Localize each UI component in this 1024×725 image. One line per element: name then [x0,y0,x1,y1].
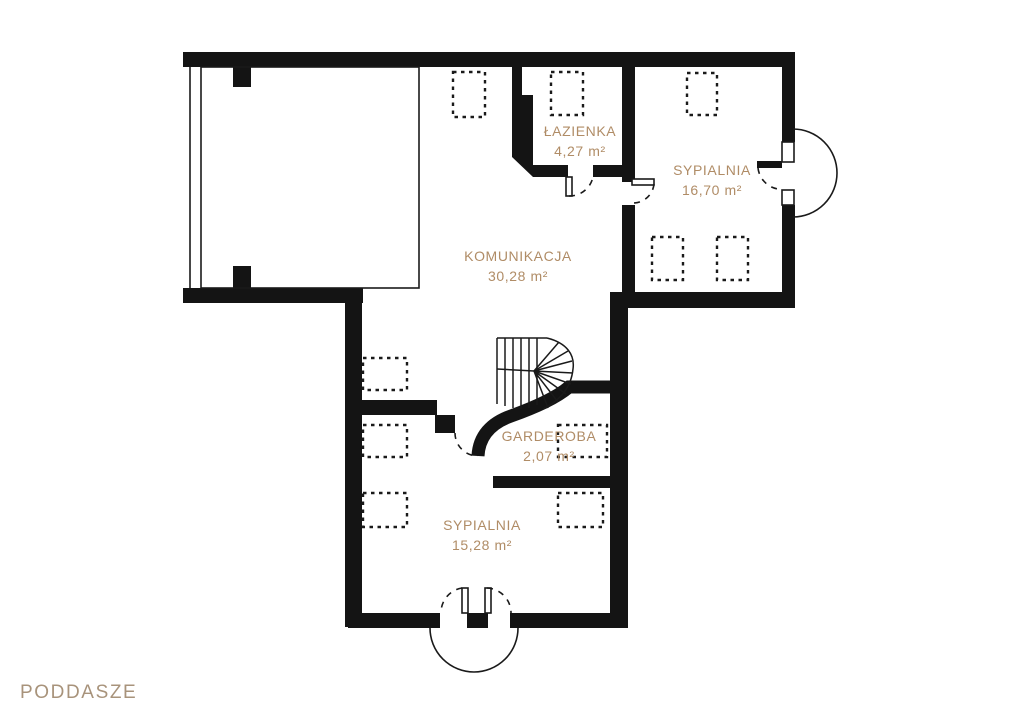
entry-door-leaf-left [462,588,468,613]
roof-window [652,237,683,280]
balcony-door-swing-arc [793,129,837,217]
roof-window [551,72,583,115]
wall-stub-bottom [233,266,251,288]
room-label-sypialnia-dolna: SYPIALNIA 15,28 m² [443,515,521,555]
bedroom-door-leaf [632,179,654,185]
bathroom-door-leaf [566,177,572,196]
room-label-sypialnia-gorna: SYPIALNIA 16,70 m² [673,160,751,200]
wall-bathroom-bottom-left [533,165,568,177]
room-name: SYPIALNIA [443,515,521,535]
wall-corridor-bedroom [622,205,635,292]
roof-window [363,493,407,527]
wall-left-lower-section [345,288,362,627]
roof-window [717,237,748,280]
wall-bathroom-bottom-right [593,165,622,177]
entry-door-leaf-right [485,588,491,613]
bedroom-door-swing [633,184,654,203]
room-label-garderoba: GARDEROBA 2,07 m² [502,426,597,466]
wall-bedroom-bottom [612,292,795,308]
entry-door-outer-arc [430,628,518,672]
room-name: SYPIALNIA [673,160,751,180]
roof-window [363,425,407,457]
roof-window [453,72,485,117]
room-area: 2,07 m² [502,446,597,466]
wall-entry-center-stub [467,613,488,628]
wall-stub-top [233,67,251,87]
wall-top-exterior [183,52,795,67]
floor-title: PODDASZE [20,682,137,704]
roof-window [687,73,717,115]
room-name: ŁAZIENKA [544,121,617,141]
room-area: 4,27 m² [544,141,617,161]
floor-plan-drawing [0,0,1024,725]
room-label-lazienka: ŁAZIENKA 4,27 m² [544,121,617,161]
roof-window [363,358,407,390]
room-name: GARDEROBA [502,426,597,446]
open-area-void [190,67,419,288]
floor-plan-page: ŁAZIENKA 4,27 m² SYPIALNIA 16,70 m² KOMU… [0,0,1024,725]
room-area: 30,28 m² [464,266,572,286]
balcony-door-swing-dashed [758,168,778,189]
wall-bathroom-left [512,67,533,177]
open-area-rect [201,67,419,288]
wall-right-lower-section [610,292,628,627]
wall-right-upper [782,67,795,142]
wall-corridor-bedroom2 [362,400,437,415]
wall-door-jamb-block [435,415,455,433]
wall-bottom-entry-right [510,613,628,628]
room-area: 15,28 m² [443,535,521,555]
room-area: 16,70 m² [673,180,751,200]
entry-door-swing-left [441,588,462,613]
roof-window [558,493,603,527]
wall-bottom-entry-left [348,613,440,628]
balcony-door-leaf [757,161,782,168]
balcony-window-panel [782,190,794,205]
wall-garderoba-bottom [493,476,610,488]
balcony-window-panel [782,142,794,162]
wall-bathroom-bedroom [622,67,635,182]
room-name: KOMUNIKACJA [464,246,572,266]
room-label-komunikacja: KOMUNIKACJA 30,28 m² [464,246,572,286]
wall-bottom-left-section [183,288,363,303]
